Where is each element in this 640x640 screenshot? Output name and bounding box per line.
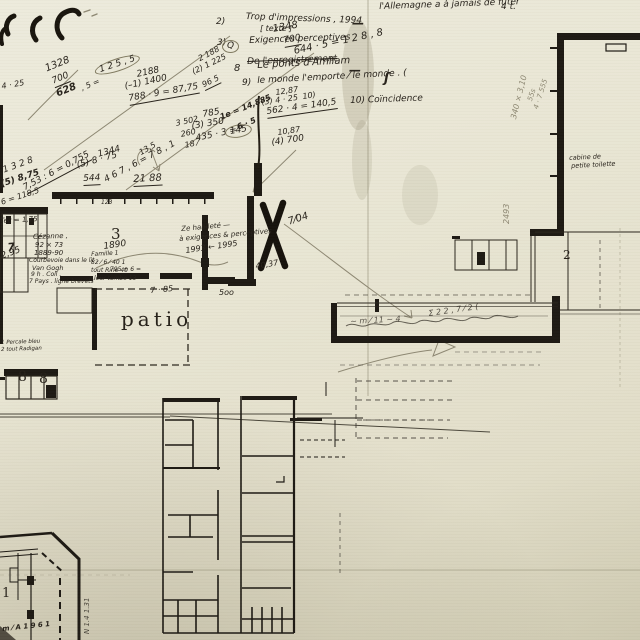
- dimension-note: Σ 2 2 , 7 ⁄ 2 (: [428, 303, 479, 318]
- printed-room-label: 8: [39, 372, 48, 386]
- calculation: Q: [222, 40, 239, 53]
- margin-scribble: tout Rine 40: [91, 268, 128, 274]
- list-note: —: [349, 64, 361, 76]
- margin-scribble: 7 Pays . ligne brevets: [29, 279, 94, 285]
- calculation: 1348: [272, 21, 299, 35]
- dimension-note: 5oo: [219, 289, 234, 297]
- calculation: 6 = 118,5: [0, 187, 40, 207]
- list-note: 4 t.: [501, 3, 516, 12]
- list-note: ʃ: [384, 72, 389, 85]
- printed-room-label: 1: [2, 587, 10, 600]
- calculation: 4 · 25: [1, 79, 25, 91]
- dimension-note: 123: [101, 200, 112, 206]
- list-note: —: [352, 17, 364, 29]
- list-note: 8: [234, 64, 240, 74]
- annotation-layer: patio881232)Trop d'impressions , 1994[ t…: [0, 0, 640, 640]
- margin-scribble: 1993 ← 1995: [185, 240, 238, 255]
- printed-room-label: 8: [18, 370, 27, 384]
- margin-scribble: 2 tout Radigan: [1, 347, 42, 354]
- calculation: , 5 =: [80, 78, 101, 93]
- margin-scribble: m ⁄ A 1 9 6 1: [2, 621, 50, 633]
- dimension-note: 2,95: [0, 246, 22, 261]
- dimension-note: 40,37: [255, 259, 279, 271]
- calculation: 96 5: [201, 74, 221, 91]
- dimension-note: 7 · 85: [150, 285, 174, 295]
- margin-scribble: petite toilette: [571, 161, 616, 170]
- pencil-dimension: 4 · 7 555: [533, 78, 549, 110]
- printed-room-label: patio: [121, 309, 192, 329]
- dimension-note: ~ m ⁄ 11 ~ 4: [350, 315, 401, 326]
- calculation: 1 2 5 , 5: [93, 51, 142, 78]
- dimension-note: Tec = 1,75: [0, 216, 38, 225]
- pencil-dimension-dark: N 1.4 1.31: [84, 598, 91, 634]
- list-note: Le ponts d'Amliam: [257, 56, 351, 71]
- calculation: 260: [180, 128, 197, 139]
- list-note: 2): [216, 18, 225, 27]
- margin-scribble: Famille 1: [91, 251, 119, 258]
- dimension-note: 7⁄04: [287, 212, 310, 228]
- margin-scribble: leur tombe 13: [94, 276, 136, 282]
- scanned-plan-document: patio881232)Trop d'impressions , 1994[ t…: [0, 0, 640, 640]
- list-note: 9): [242, 79, 251, 88]
- calculation: 18 ⁄: [184, 139, 199, 150]
- list-note: l'Allemagne a à jamais de fûter: [379, 0, 520, 12]
- printed-room-label: 2: [563, 249, 571, 261]
- calculation: (4) 700: [271, 134, 305, 147]
- dimension-note: 21 88: [133, 174, 162, 187]
- margin-scribble: 1889-90: [34, 250, 63, 257]
- list-note: 10) Coïncidence: [350, 94, 423, 106]
- dimension-note: 544: [83, 174, 101, 186]
- margin-scribble: Cézanne ,: [33, 233, 68, 241]
- margin-scribble: 92 × 73: [35, 242, 63, 249]
- pencil-dimension: 2493: [503, 204, 511, 224]
